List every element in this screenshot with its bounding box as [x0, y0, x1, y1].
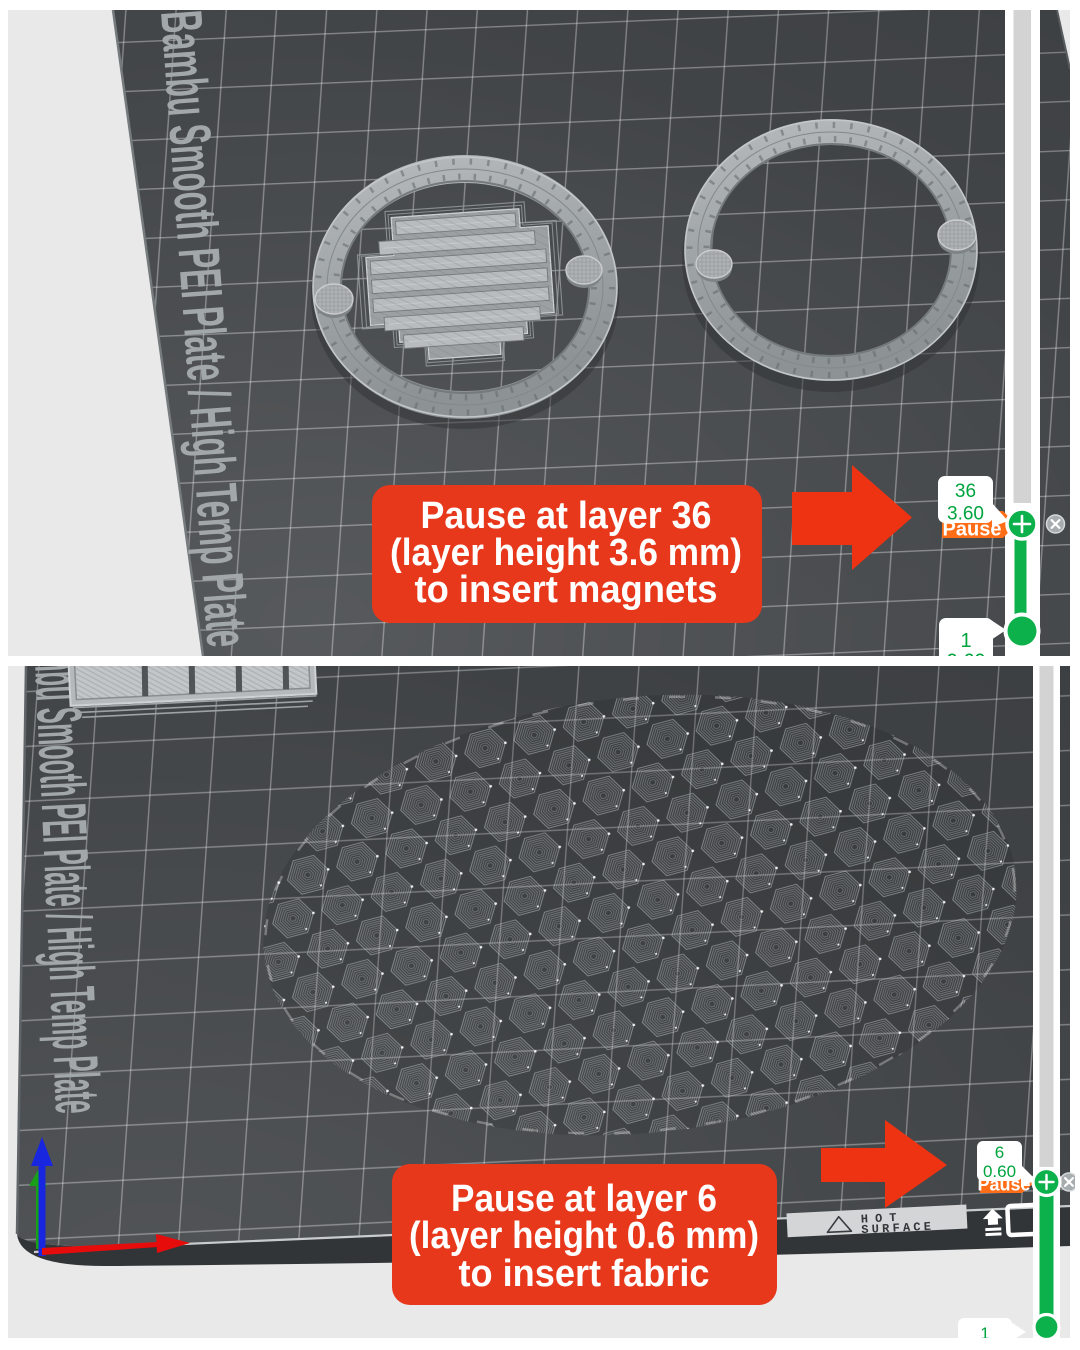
svg-text:Pause at layer 6: Pause at layer 6 [451, 1178, 717, 1220]
svg-text:(layer height 0.6 mm): (layer height 0.6 mm) [409, 1215, 759, 1257]
svg-text:3.60: 3.60 [947, 504, 984, 525]
svg-text:to insert fabric: to insert fabric [459, 1253, 710, 1295]
svg-text:Pause at layer 36: Pause at layer 36 [421, 495, 712, 537]
svg-text:0.60: 0.60 [983, 1162, 1016, 1181]
svg-text:1: 1 [960, 630, 971, 652]
svg-text:to insert magnets: to insert magnets [415, 569, 718, 611]
svg-text:(layer height 3.6 mm): (layer height 3.6 mm) [390, 532, 742, 574]
svg-text:0.60: 0.60 [947, 651, 986, 657]
svg-text:1: 1 [980, 1324, 989, 1338]
svg-text:36: 36 [955, 481, 976, 502]
svg-text:6: 6 [995, 1143, 1004, 1162]
